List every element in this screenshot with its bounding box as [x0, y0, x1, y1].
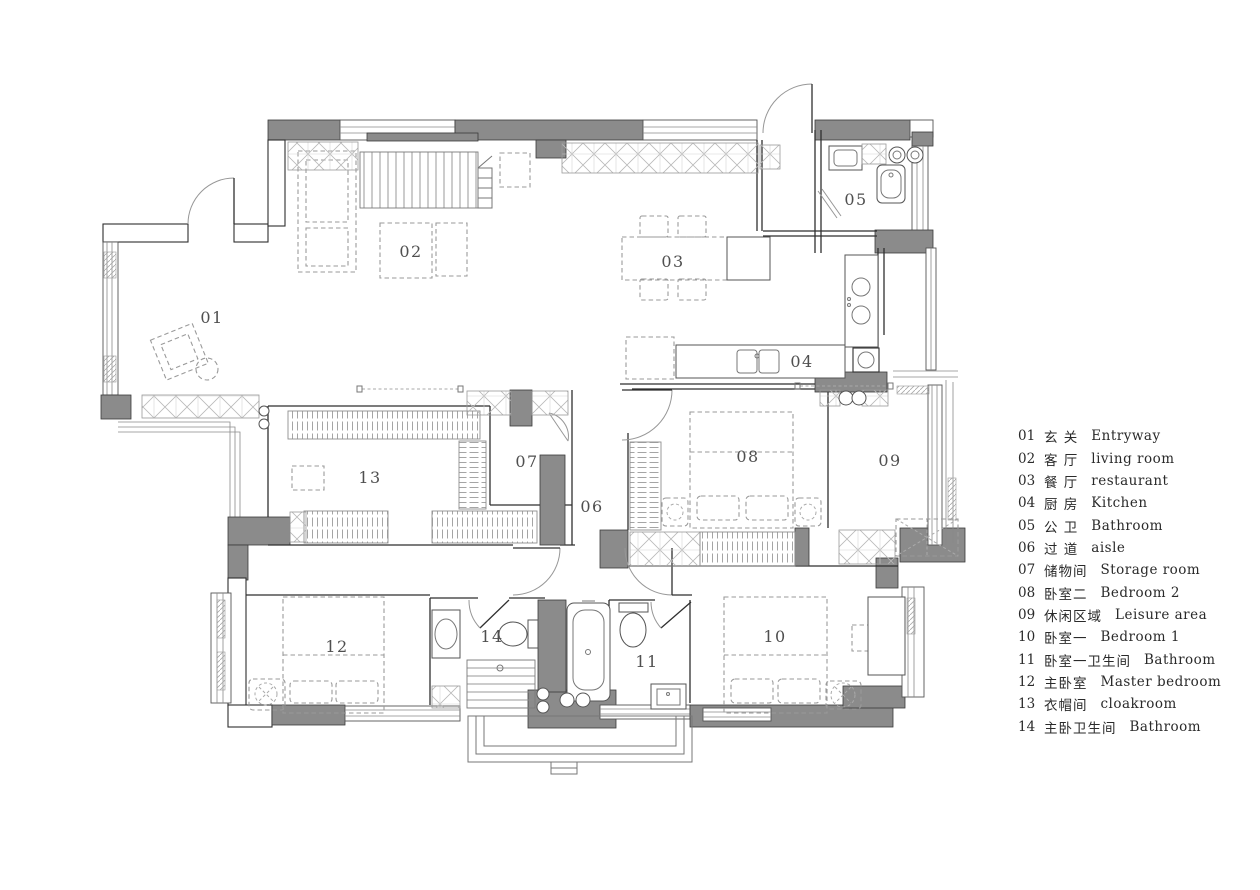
room-label-03: 03: [661, 252, 684, 271]
legend-item: 03餐 厅restaurant: [1018, 470, 1221, 492]
legend-item-en: living room: [1091, 451, 1174, 467]
legend-item: 10卧室一Bedroom 1: [1018, 626, 1221, 648]
cooktop: [845, 255, 878, 347]
legend-item-en: Master bedroom: [1101, 674, 1222, 690]
room-label-09: 09: [878, 451, 901, 470]
entry-door: [763, 84, 812, 133]
legend-item-zh: 过 道: [1044, 538, 1078, 558]
legend-item-number: 11: [1018, 652, 1044, 668]
storage-door: [549, 413, 568, 441]
legend-item-zh: 储物间: [1044, 560, 1088, 580]
cloakroom-stool: [292, 466, 324, 490]
room-label-14: 14: [480, 627, 503, 646]
legend-item-zh: 餐 厅: [1044, 471, 1078, 491]
legend-item-en: Bathroom: [1091, 518, 1163, 534]
legend-item: 09休闲区域Leisure area: [1018, 604, 1221, 626]
legend-item-en: Storage room: [1101, 562, 1201, 578]
legend-item: 13衣帽间cloakroom: [1018, 693, 1221, 715]
bath11-toilet: [619, 603, 648, 647]
legend-item: 07储物间Storage room: [1018, 559, 1221, 581]
legend-item-en: aisle: [1091, 540, 1125, 556]
legend-item-en: Bathroom: [1144, 652, 1216, 668]
radiator: [948, 478, 956, 520]
legend-item-zh: 公 卫: [1044, 516, 1078, 536]
legend-item-number: 10: [1018, 629, 1044, 645]
armchair: [150, 323, 208, 380]
legend-item-en: Bedroom 2: [1101, 585, 1180, 601]
bath11-sink: [651, 684, 686, 709]
legend-item-number: 12: [1018, 674, 1044, 690]
bath05-sink: [829, 146, 862, 170]
corridor-door: [513, 548, 560, 595]
room-label-02: 02: [399, 242, 422, 261]
legend-item: 12主卧室Master bedroom: [1018, 671, 1221, 693]
bath11-door: [651, 602, 691, 628]
kitchen-counter: [676, 345, 845, 378]
legend-item-number: 06: [1018, 540, 1044, 556]
bedroom1-bed: [724, 597, 827, 713]
legend-item-zh: 主卧室: [1044, 672, 1088, 692]
dining-table: [622, 216, 770, 300]
legend-item-zh: 主卧卫生间: [1044, 717, 1117, 737]
bedroom2-wardrobe: [630, 442, 661, 530]
room-label-04: 04: [790, 352, 813, 371]
legend-item-zh: 休闲区域: [1044, 605, 1102, 625]
legend-item-zh: 卧室一: [1044, 627, 1088, 647]
room-label-11: 11: [635, 652, 658, 671]
legend-item-zh: 厨 房: [1044, 493, 1078, 513]
legend-item-zh: 客 厅: [1044, 449, 1078, 469]
room-label-01: 01: [200, 308, 223, 327]
legend-item-number: 14: [1018, 719, 1044, 735]
room-label-10: 10: [763, 627, 786, 646]
legend-item-number: 09: [1018, 607, 1044, 623]
washing-machines: [889, 147, 923, 163]
ac-unit: [897, 386, 929, 394]
legend-item: 06过 道aisle: [1018, 537, 1221, 559]
legend-item-number: 01: [1018, 428, 1044, 444]
room-label-06: 06: [580, 497, 603, 516]
legend-item-number: 08: [1018, 585, 1044, 601]
legend-item-zh: 卧室二: [1044, 583, 1088, 603]
bedroom2-door: [622, 390, 672, 440]
bath14-cabinet: [432, 686, 460, 708]
floorplan-page: 0102030405060708091011121314 01玄 关Entryw…: [0, 0, 1260, 890]
bedroom2-bed: [690, 412, 793, 528]
legend-item-number: 05: [1018, 518, 1044, 534]
legend-item-number: 13: [1018, 696, 1044, 712]
room-label-13: 13: [358, 468, 381, 487]
bath11-bathtub: [567, 601, 610, 701]
fridge: [626, 337, 674, 379]
master-bath-door: [469, 600, 509, 628]
legend-item-en: Bathroom: [1130, 719, 1202, 735]
legend-item-number: 03: [1018, 473, 1044, 489]
bath05-cabinet: [862, 144, 886, 164]
bath14-sink: [432, 610, 460, 658]
legend-item-zh: 卧室一卫生间: [1044, 650, 1131, 670]
legend-item-zh: 玄 关: [1044, 426, 1078, 446]
bath14-shower: [467, 660, 535, 708]
legend-item-en: Entryway: [1091, 428, 1160, 444]
cloakroom-racks: [288, 411, 537, 543]
legend-item-number: 07: [1018, 562, 1044, 578]
bath14-toilet: [499, 620, 538, 648]
legend-item-zh: 衣帽间: [1044, 694, 1088, 714]
legend-item: 11卧室一卫生间Bathroom: [1018, 648, 1221, 670]
entry-cabinet: [142, 395, 269, 429]
legend-item: 02客 厅living room: [1018, 447, 1221, 469]
bath05-bathtub: [877, 165, 905, 203]
ottomans: [380, 223, 467, 278]
terrace-door: [188, 178, 234, 224]
bedroom2-nightstands: [662, 498, 821, 526]
legend-item-number: 04: [1018, 495, 1044, 511]
legend-item: 05公 卫Bathroom: [1018, 514, 1221, 536]
legend-item-en: restaurant: [1091, 473, 1168, 489]
tv-cabinet: [360, 152, 530, 208]
legend: 01玄 关Entryway02客 厅living room03餐 厅restau…: [1018, 425, 1221, 738]
legend-item-en: Bedroom 1: [1101, 629, 1180, 645]
room-label-12: 12: [325, 637, 348, 656]
legend-item: 14主卧卫生间Bathroom: [1018, 715, 1221, 737]
legend-item: 01玄 关Entryway: [1018, 425, 1221, 447]
legend-item-en: cloakroom: [1101, 696, 1177, 712]
legend-item-en: Kitchen: [1091, 495, 1147, 511]
room-label-05: 05: [844, 190, 867, 209]
hall-wardrobe-strip: [630, 530, 895, 566]
room-label-07: 07: [515, 452, 538, 471]
room-label-08: 08: [736, 447, 759, 466]
legend-item-en: Leisure area: [1115, 607, 1207, 623]
sliding-door-cloakroom: [357, 386, 463, 392]
legend-item-number: 02: [1018, 451, 1044, 467]
legend-item: 04厨 房Kitchen: [1018, 492, 1221, 514]
legend-item: 08卧室二Bedroom 2: [1018, 581, 1221, 603]
